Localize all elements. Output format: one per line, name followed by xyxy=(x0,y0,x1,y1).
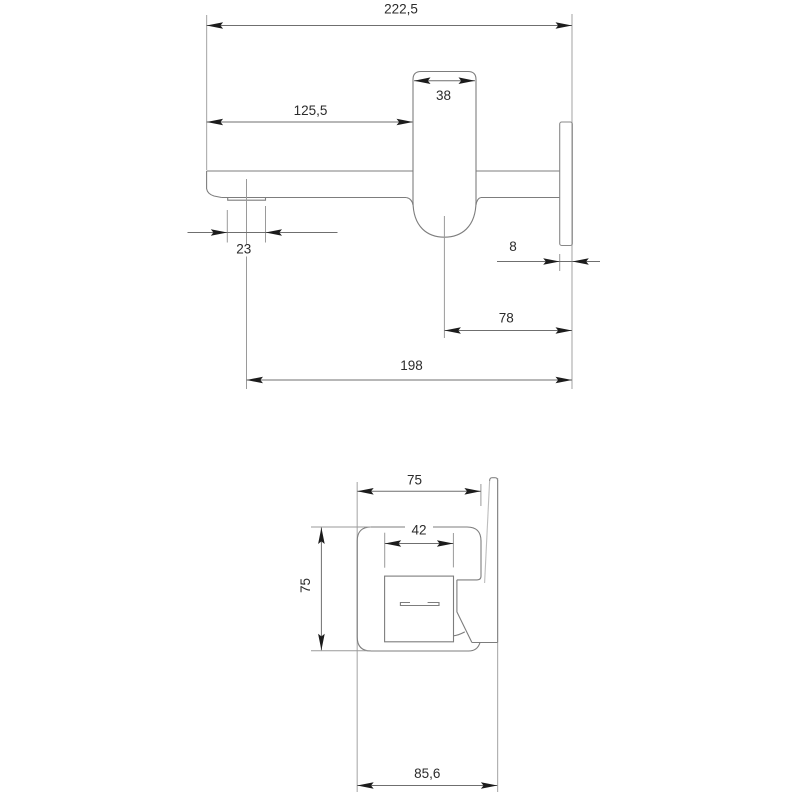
svg-text:222,5: 222,5 xyxy=(384,2,418,17)
svg-text:125,5: 125,5 xyxy=(294,103,328,118)
svg-text:75: 75 xyxy=(298,578,313,593)
svg-text:23: 23 xyxy=(236,242,251,257)
svg-text:78: 78 xyxy=(499,311,514,326)
svg-text:8: 8 xyxy=(509,239,517,254)
svg-text:198: 198 xyxy=(400,358,423,373)
svg-text:38: 38 xyxy=(436,88,451,103)
svg-text:75: 75 xyxy=(407,473,422,488)
svg-text:42: 42 xyxy=(411,523,426,538)
svg-text:85,6: 85,6 xyxy=(414,766,440,781)
